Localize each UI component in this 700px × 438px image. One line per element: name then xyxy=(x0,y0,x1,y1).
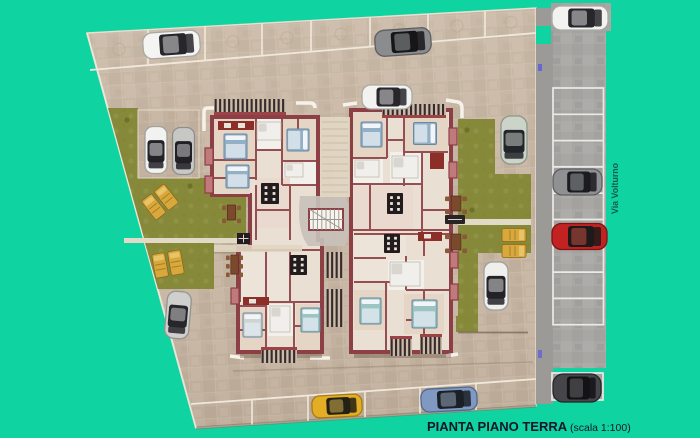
svg-text:Via Volturno: Via Volturno xyxy=(610,162,620,214)
svg-text:PIANTA PIANO TERRA: PIANTA PIANO TERRA xyxy=(427,419,568,434)
svg-text:(scala 1:100): (scala 1:100) xyxy=(570,422,631,434)
